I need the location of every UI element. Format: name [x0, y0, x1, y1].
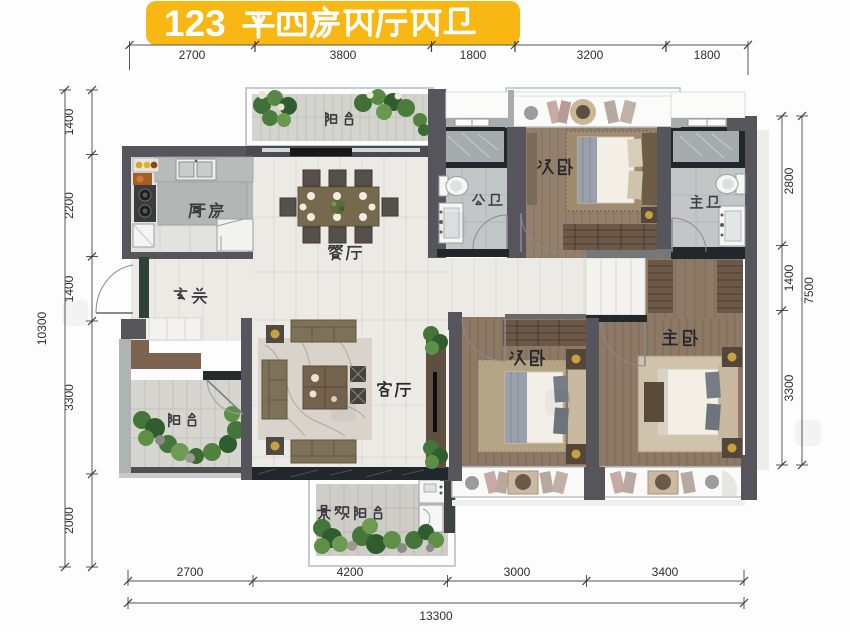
svg-text:10300: 10300 — [35, 311, 49, 345]
svg-text:3300: 3300 — [62, 384, 76, 411]
svg-text:3300: 3300 — [782, 374, 796, 401]
svg-text:2700: 2700 — [177, 565, 204, 579]
svg-text:1800: 1800 — [694, 48, 721, 62]
svg-text:2000: 2000 — [62, 507, 76, 534]
svg-text:13300: 13300 — [419, 609, 453, 623]
svg-text:3800: 3800 — [330, 48, 357, 62]
svg-text:7500: 7500 — [802, 277, 816, 304]
svg-text:4200: 4200 — [337, 565, 364, 579]
svg-text:2700: 2700 — [179, 48, 206, 62]
svg-text:3200: 3200 — [577, 48, 604, 62]
svg-text:123: 123 — [164, 3, 226, 44]
svg-text:3400: 3400 — [652, 565, 679, 579]
svg-text:1800: 1800 — [460, 48, 487, 62]
svg-text:2200: 2200 — [62, 192, 76, 219]
svg-text:1400: 1400 — [782, 264, 796, 291]
svg-text:3000: 3000 — [504, 565, 531, 579]
svg-text:1400: 1400 — [62, 108, 76, 135]
svg-text:1400: 1400 — [62, 275, 76, 302]
svg-text:2800: 2800 — [782, 167, 796, 194]
